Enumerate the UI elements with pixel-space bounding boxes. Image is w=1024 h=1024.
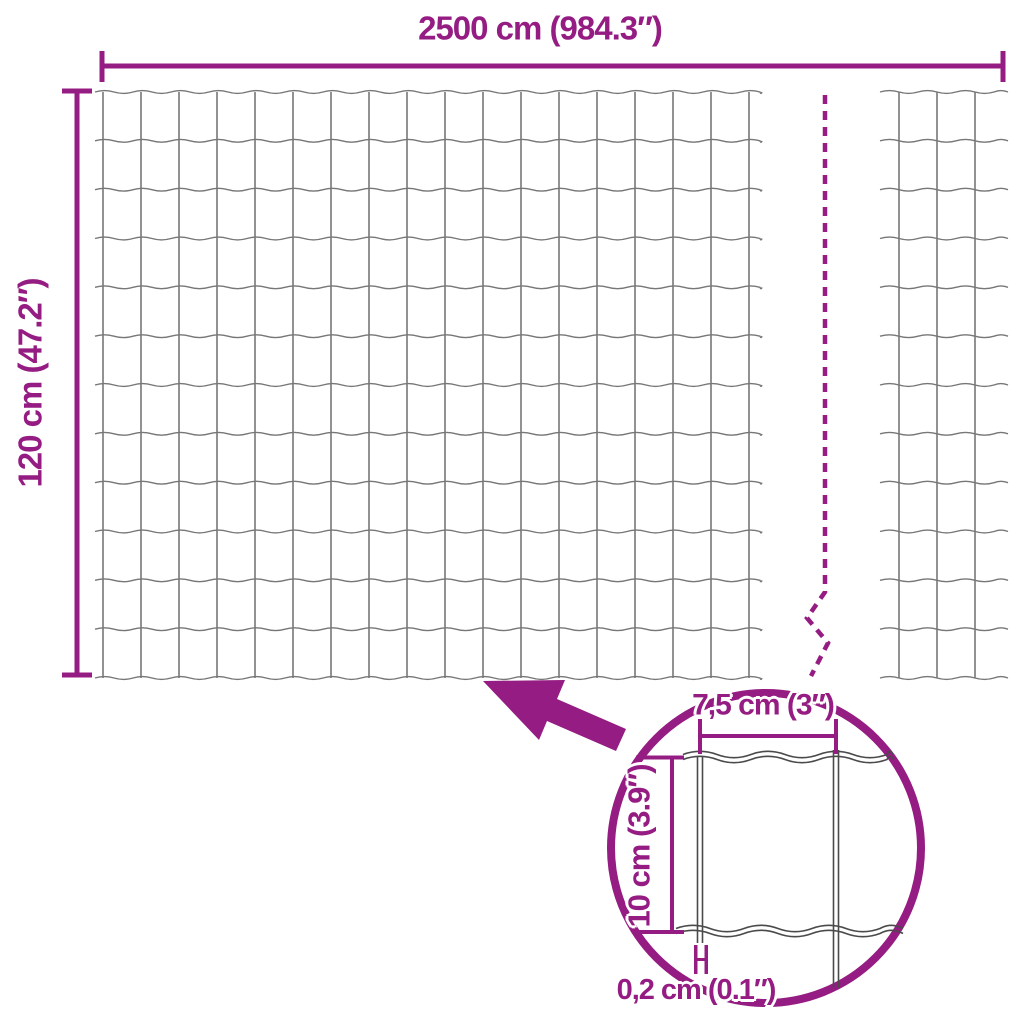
horizontal-wire (95, 286, 762, 289)
zoom-detail-circle (611, 693, 921, 1003)
fence-mesh-main-panel (95, 91, 762, 680)
horizontal-wire (95, 481, 762, 484)
dimension-line (102, 64, 1003, 69)
horizontal-wire (95, 579, 762, 582)
total-height-dimension-line (62, 89, 92, 678)
horizontal-wire (95, 677, 762, 680)
horizontal-wire (95, 384, 762, 387)
wire-thickness-label: 0,2 cm (0.1″) (617, 975, 776, 1005)
horizontal-wire (95, 237, 762, 240)
horizontal-wire (95, 432, 762, 435)
total-width-dimension-line (100, 51, 1006, 82)
fence-mesh-right-panel (880, 91, 1008, 680)
dimension-line (75, 91, 80, 675)
horizontal-wire (95, 91, 762, 94)
horizontal-wire (95, 139, 762, 142)
marker-bar (694, 958, 708, 961)
dimension-end-cap (636, 930, 684, 934)
mesh-height-label: 10 cm (3.9″) (624, 764, 657, 927)
horizontal-wire (95, 628, 762, 631)
mesh-width-label: 7,5 cm (3″) (692, 689, 834, 721)
dimension-end-cap (636, 756, 684, 760)
horizontal-wire (95, 530, 762, 533)
break-line (807, 95, 828, 676)
fence-dimension-diagram: 2500 cm (984.3″) 120 cm (47.2″) 7,5 cm (… (0, 0, 1024, 1024)
horizontal-wire (95, 188, 762, 191)
zoom-arrow-icon (483, 680, 626, 751)
dimension-line (670, 757, 674, 932)
total-width-label: 2500 cm (984.3″) (418, 12, 662, 47)
total-height-label: 120 cm (47.2″) (14, 278, 49, 487)
dimension-line (700, 734, 836, 738)
diagram-canvas (0, 0, 1024, 1024)
horizontal-wire (95, 335, 762, 338)
